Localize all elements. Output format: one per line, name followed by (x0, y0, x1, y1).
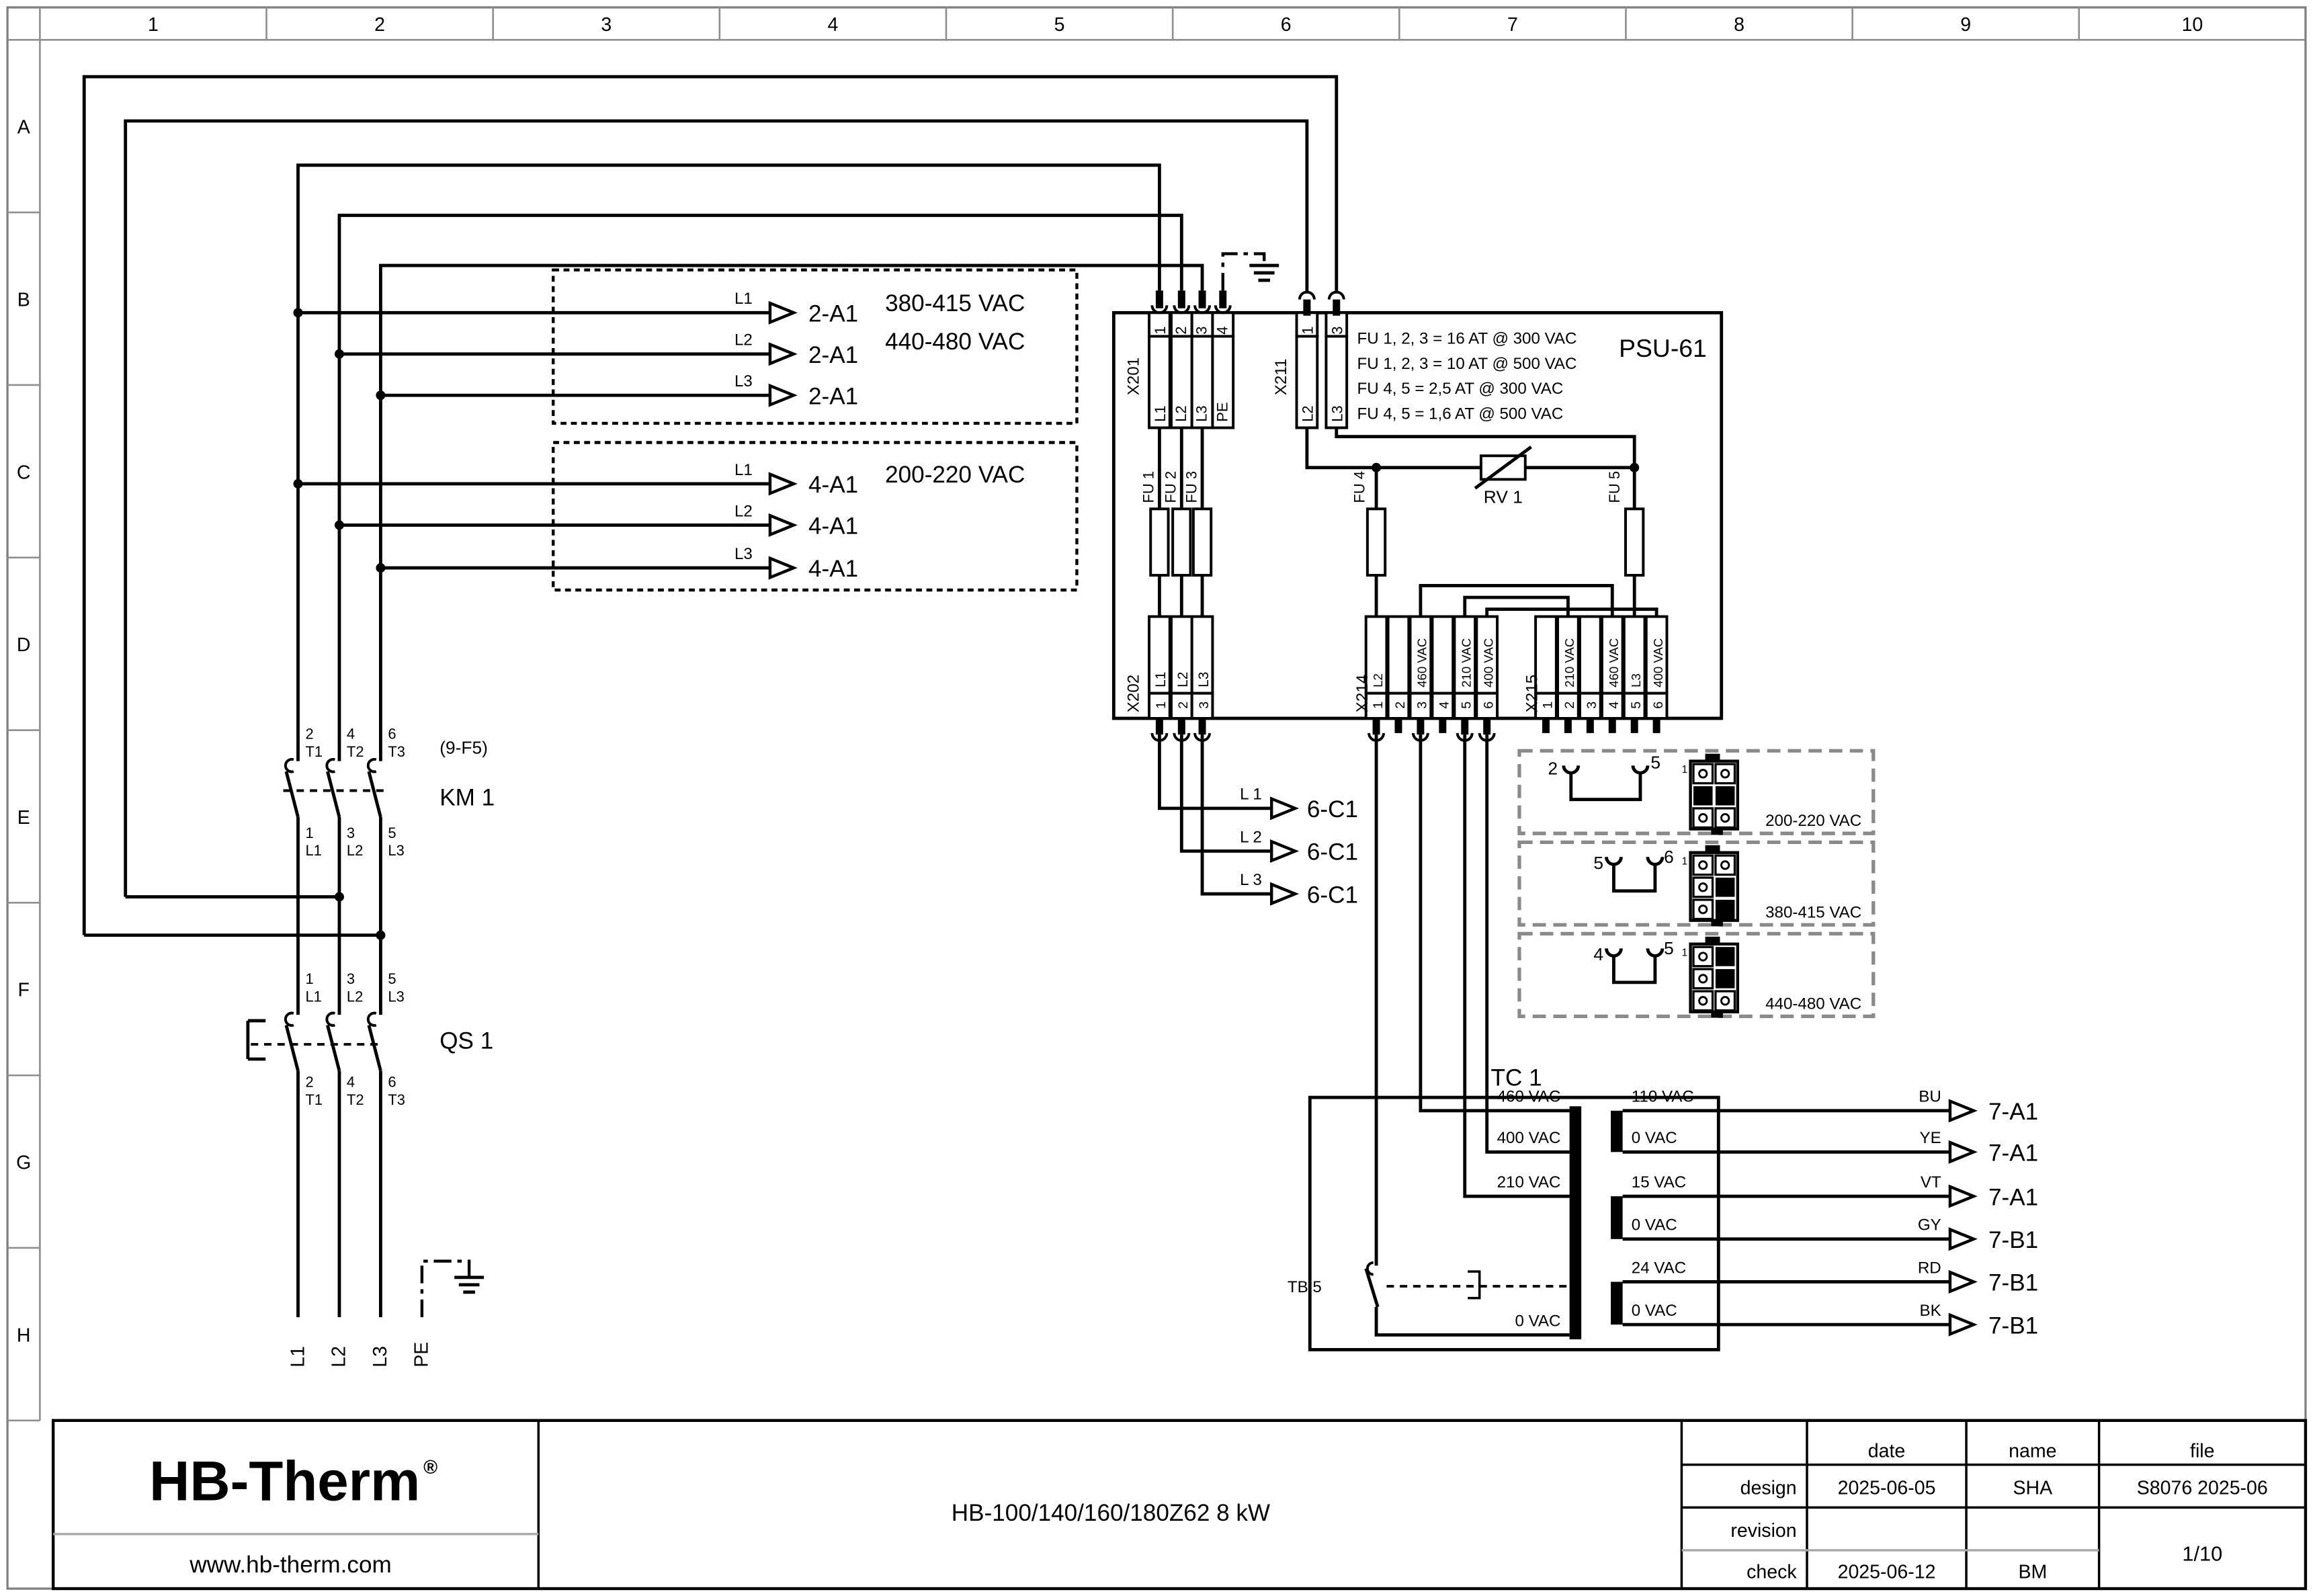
feed-l1-label: L1 (734, 290, 753, 308)
arrow-1 (770, 303, 794, 323)
schematic-page: 12345678910 ABCDEFGH (0, 0, 2313, 1596)
dest-7a1-1: 7-A1 (1988, 1099, 2038, 1125)
km1-blades (286, 771, 380, 817)
x215-c2: 210 VAC (1562, 638, 1576, 687)
feed2-l1-label: L1 (734, 461, 753, 479)
mains-l3: L3 (370, 1346, 391, 1368)
qs1-blades (286, 1025, 380, 1071)
km1-bot-L1: L1 (305, 842, 321, 859)
feed-wire-l2-top (126, 121, 1307, 897)
km1-top-T3: T3 (388, 743, 405, 760)
x215-term3-body (1580, 617, 1601, 694)
grid-row-H: H (17, 1325, 31, 1346)
optC-pin5: 5 (1664, 938, 1674, 958)
feed-wire-l1 (298, 165, 1160, 761)
fuse-note-1: FU 1, 2, 3 = 16 AT @ 300 VAC (1357, 329, 1577, 347)
voltage-range-2: 440-480 VAC (885, 329, 1025, 355)
jumper-5-6 (1606, 857, 1662, 890)
col-header-name: name (2009, 1441, 2056, 1462)
fu5-label: FU 5 (1606, 471, 1623, 503)
arrow-2 (770, 345, 794, 364)
fuse-note-2: FU 1, 2, 3 = 10 AT @ 500 VAC (1357, 355, 1577, 373)
optA-voltage: 200-220 VAC (1765, 812, 1861, 830)
contactor-km1 (284, 759, 387, 817)
feed-wire-l2 (339, 215, 1181, 761)
grid-row-labels: ABCDEFGH (16, 117, 31, 1347)
ground-symbol-mains (454, 1277, 484, 1292)
x215-c5: L3 (1629, 673, 1643, 687)
x202-label: X202 (1125, 675, 1143, 712)
fuse-fu1 (1150, 509, 1168, 575)
voltage-range-3: 200-220 VAC (885, 462, 1025, 488)
fuse-fu4 (1368, 509, 1385, 575)
grid-row-B: B (17, 289, 30, 310)
dest-7b1-3: 7-B1 (1988, 1312, 2038, 1339)
x201-t2: 2 (1173, 327, 1189, 335)
dest-2a1-3: 2-A1 (808, 383, 858, 409)
fu1-label: FU 1 (1140, 471, 1157, 503)
x202-l3: L3 (1196, 672, 1212, 687)
x215-t5: 5 (1629, 702, 1644, 709)
tc1-sec-24: 24 VAC (1632, 1259, 1686, 1277)
tb5-actuator (1468, 1271, 1480, 1298)
arrow-14 (1950, 1272, 1974, 1292)
disconnect-qs1 (248, 1013, 381, 1071)
wirecolor-ye: YE (1920, 1129, 1941, 1147)
qs1-bot-T1: T1 (305, 1091, 323, 1108)
fuse-fu5 (1626, 509, 1643, 575)
connector-pinout-icons (1691, 754, 1738, 1018)
fu2-label: FU 2 (1163, 471, 1179, 503)
fuse-note-3: FU 4, 5 = 2,5 AT @ 300 VAC (1357, 380, 1564, 398)
dest-7a1-3: 7-A1 (1988, 1184, 2038, 1210)
arrow-12 (1950, 1187, 1974, 1206)
x214-t4: 4 (1437, 702, 1452, 709)
x215-t3: 3 (1585, 702, 1599, 709)
tie-wires (84, 897, 380, 935)
wirecolor-rd: RD (1918, 1259, 1941, 1277)
page-number: 1/10 (2182, 1542, 2222, 1565)
x214-t2: 2 (1393, 702, 1408, 709)
x211-label: X211 (1272, 359, 1290, 396)
qs1-top-L3: L3 (388, 988, 404, 1005)
junction-dot-1 (293, 308, 302, 317)
grid-col-9: 9 (1960, 14, 1971, 36)
x211-internal-wires (1307, 428, 1634, 468)
x214-c6: 400 VAC (1481, 638, 1495, 687)
km1-top-T1: T1 (305, 743, 323, 760)
file-value: S8076 2025-06 (2137, 1478, 2268, 1499)
icon-380-415 (1691, 845, 1738, 927)
junction-dot-3 (376, 390, 385, 400)
dest-6c1-3: 6-C1 (1307, 882, 1358, 908)
grid-divider-lines (7, 7, 2079, 1248)
arrow-15 (1950, 1315, 1974, 1335)
qs1-bot-4: 4 (347, 1074, 355, 1091)
dest-6c1-2: 6-C1 (1307, 839, 1358, 866)
grid-col-5: 5 (1054, 14, 1065, 36)
junction-dot-8 (376, 931, 385, 940)
x215-t4: 4 (1607, 702, 1622, 709)
x201-t4: 4 (1214, 327, 1230, 335)
mains-l1: L1 (287, 1346, 308, 1368)
junction-dot-2 (335, 349, 344, 359)
pe-conductor (422, 1261, 469, 1317)
km1-bot-1: 1 (305, 825, 313, 841)
qs1-bot-2: 2 (305, 1074, 313, 1091)
x201-label: X201 (1125, 358, 1143, 395)
x214-c3: 460 VAC (1415, 638, 1429, 687)
km1-bot-L2: L2 (347, 842, 363, 859)
x202-l2: L2 (1175, 672, 1191, 687)
grid-row-D: D (17, 634, 31, 656)
km1-top-4: 4 (347, 726, 355, 743)
grid-row-C: C (17, 462, 31, 483)
website: www.hb-therm.com (189, 1552, 391, 1578)
fu4-label: FU 4 (1351, 471, 1368, 503)
junction-dot-9 (1372, 463, 1381, 472)
grid-column-labels: 12345678910 (148, 14, 2203, 36)
qs1-contact-hooks (286, 1013, 376, 1025)
feed2-l3-label: L3 (734, 545, 753, 563)
km1-top-6: 6 (388, 726, 396, 743)
x202-output-wires (1159, 734, 1271, 894)
feed2-l2-label: L2 (734, 502, 753, 520)
km1-bot-3: 3 (347, 825, 355, 841)
dest-4a1-1: 4-A1 (808, 472, 858, 498)
wire-l3-label: L 3 (1240, 871, 1262, 889)
x201-t1: 1 (1152, 327, 1169, 335)
tc1-secondary-winding-24 (1611, 1282, 1623, 1325)
row-label-check: check (1747, 1562, 1797, 1583)
x215-c6: 400 VAC (1651, 638, 1665, 687)
optA-pin2: 2 (1548, 758, 1558, 778)
dest-7a1-2: 7-A1 (1988, 1140, 2038, 1166)
x211-t1: 1 (1300, 327, 1316, 335)
optC-pin4: 4 (1593, 944, 1603, 964)
dest-4a1-3: 4-A1 (808, 556, 858, 582)
arrow-13 (1950, 1230, 1974, 1249)
tc1-sec-0c: 0 VAC (1632, 1302, 1677, 1320)
bridge-wires (1421, 585, 1656, 616)
tc1-sec-110: 110 VAC (1632, 1088, 1694, 1106)
fuse-note-4: FU 4, 5 = 1,6 AT @ 500 VAC (1357, 405, 1564, 423)
qs1-top-1: 1 (305, 970, 313, 987)
optB-pin1: 1 (1682, 855, 1688, 867)
x214-t1: 1 (1371, 702, 1386, 709)
arrow-6 (770, 558, 794, 578)
wire-l2-label: L 2 (1240, 828, 1262, 846)
connector-option-boxes (1519, 751, 1874, 1017)
arrow-3 (770, 386, 794, 405)
x215-label: X215 (1523, 675, 1541, 712)
logo-text: HB-Therm (149, 1449, 420, 1512)
junction-dot-7 (335, 892, 344, 902)
tc1-sec-15: 15 VAC (1632, 1173, 1686, 1191)
arrow-7 (1271, 799, 1295, 818)
junction-dot-10 (1630, 463, 1639, 472)
icon-200-220 (1691, 754, 1738, 835)
x214-t3: 3 (1415, 702, 1430, 709)
feed-l2-label: L2 (734, 331, 753, 349)
optA-pin5: 5 (1650, 753, 1660, 773)
grid-col-8: 8 (1734, 14, 1744, 36)
mains-l2: L2 (329, 1346, 350, 1368)
arrow-5 (770, 515, 794, 535)
wirecolor-bk: BK (1920, 1302, 1941, 1320)
grid-ticks (7, 7, 2079, 1248)
voltage-range-1: 380-415 VAC (885, 290, 1025, 317)
x214-to-tc1-wires (1376, 734, 1570, 1335)
design-name: SHA (2013, 1478, 2053, 1499)
x201-l3: L3 (1193, 405, 1210, 421)
x214-label: X214 (1353, 675, 1372, 712)
feed-wire-l3-top (84, 77, 1337, 935)
row-label-design: design (1740, 1478, 1797, 1499)
design-date: 2025-06-05 (1838, 1478, 1936, 1499)
km1-ref: (9-F5) (439, 738, 488, 758)
dest-6c1-1: 6-C1 (1307, 796, 1358, 823)
tc1-prim-460: 460 VAC (1497, 1088, 1561, 1106)
km1-bot-L3: L3 (388, 842, 404, 859)
grid-row-F: F (18, 980, 30, 1001)
tc1-sec-0a: 0 VAC (1632, 1129, 1677, 1147)
km1-bot-5: 5 (388, 825, 396, 841)
grid-col-6: 6 (1281, 14, 1292, 36)
x214-t6: 6 (1481, 702, 1496, 709)
wirecolor-bu: BU (1919, 1088, 1941, 1106)
arrow-4 (770, 474, 794, 494)
dest-7b1-2: 7-B1 (1988, 1270, 2038, 1296)
icon-440-480 (1691, 937, 1738, 1018)
fuse-fu3 (1193, 509, 1211, 575)
junction-dot-4 (293, 479, 302, 489)
qs1-handle (248, 1021, 265, 1059)
x211-l3: L3 (1329, 405, 1346, 421)
tc1-prim-210: 210 VAC (1497, 1173, 1561, 1191)
tc1-secondary-winding-110 (1611, 1111, 1623, 1152)
junction-dot-5 (335, 520, 344, 530)
x214-c1: L2 (1371, 673, 1385, 687)
feed-wire-l3 (380, 265, 1202, 761)
x215-t1: 1 (1540, 702, 1555, 709)
qs1-top-L2: L2 (347, 988, 363, 1005)
km1-top-2: 2 (305, 726, 313, 743)
tc1-secondary-winding-15 (1611, 1196, 1623, 1239)
grid-col-2: 2 (374, 14, 385, 36)
x201-l2: L2 (1173, 405, 1189, 421)
x202-t3: 3 (1197, 702, 1212, 709)
grid-col-3: 3 (601, 14, 612, 36)
fuse-fu2 (1173, 509, 1190, 575)
grid-col-4: 4 (827, 14, 838, 36)
tb5-label: TB 5 (1288, 1278, 1322, 1296)
wire-l1-label: L 1 (1240, 786, 1262, 804)
km1-top-T2: T2 (347, 743, 364, 760)
arrow-10 (1950, 1101, 1974, 1121)
grid-row-E: E (17, 807, 30, 829)
qs1-bot-T2: T2 (347, 1091, 364, 1108)
x211-l2: L2 (1300, 405, 1316, 421)
drawing-title: HB-100/140/160/180Z62 8 kW (952, 1500, 1271, 1526)
optC-pin1: 1 (1682, 947, 1688, 958)
grid-col-1: 1 (148, 14, 159, 36)
check-name: BM (2018, 1562, 2047, 1583)
x215-c4: 460 VAC (1607, 638, 1621, 687)
optB-voltage: 380-415 VAC (1765, 903, 1861, 921)
dest-4a1-2: 4-A1 (808, 513, 858, 540)
sheet-frame (7, 7, 2306, 1589)
qs1-name: QS 1 (439, 1028, 493, 1054)
dest-7b1-1: 7-B1 (1988, 1227, 2038, 1253)
tc1-prim-0: 0 VAC (1515, 1312, 1560, 1330)
optB-pin5: 5 (1593, 853, 1603, 873)
grid-row-G: G (16, 1152, 31, 1174)
qs1-top-5: 5 (388, 970, 396, 987)
qs1-bot-6: 6 (388, 1074, 396, 1091)
schematic-drawing: 12345678910 ABCDEFGH (0, 0, 2313, 1596)
logo-reg-mark: ® (423, 1457, 437, 1478)
check-date: 2025-06-12 (1838, 1562, 1936, 1583)
tb5-hook (1368, 1263, 1374, 1275)
col-header-date: date (1868, 1441, 1906, 1462)
x214-term2-body (1388, 617, 1409, 694)
x211-socket-2 (1329, 292, 1344, 300)
x214-c5: 210 VAC (1460, 638, 1474, 687)
qs1-top-L1: L1 (305, 988, 321, 1005)
km1-name: KM 1 (439, 784, 495, 810)
row-label-revision: revision (1730, 1520, 1796, 1542)
fuse-columns (1159, 428, 1634, 617)
x201-l1: L1 (1152, 405, 1169, 421)
x215-t2: 2 (1562, 702, 1577, 709)
tc1-primary-winding (1570, 1106, 1582, 1339)
arrow-11 (1950, 1142, 1974, 1162)
branch-wires (298, 312, 770, 568)
dest-2a1-2: 2-A1 (808, 342, 858, 368)
arrow-8 (1271, 841, 1295, 861)
fu3-label: FU 3 (1183, 471, 1200, 503)
optC-voltage: 440-480 VAC (1765, 995, 1861, 1013)
x202-t1: 1 (1154, 702, 1169, 709)
x201-t3: 3 (1193, 327, 1210, 335)
km1-contact-hooks (286, 759, 376, 771)
mains-pe: PE (411, 1342, 433, 1368)
optA-pin1: 1 (1682, 764, 1688, 775)
grid-row-A: A (17, 117, 30, 138)
x202-t2: 2 (1176, 702, 1191, 709)
x202-l1: L1 (1153, 672, 1169, 687)
tc1-prim-400: 400 VAC (1497, 1129, 1561, 1147)
x215-t6: 6 (1651, 702, 1666, 709)
feed-l3-label: L3 (734, 372, 753, 390)
x214-term4-body (1432, 617, 1453, 694)
wirecolor-gy: GY (1918, 1216, 1941, 1234)
psu-title: PSU-61 (1619, 334, 1707, 362)
rv1-label: RV 1 (1484, 487, 1523, 507)
jumper-4-5 (1606, 948, 1662, 982)
jumper-2-5 (1564, 765, 1648, 799)
x214-t5: 5 (1460, 702, 1474, 709)
junction-dot-6 (376, 563, 385, 573)
grid-col-10: 10 (2181, 14, 2203, 36)
wirecolor-vt: VT (1921, 1173, 1941, 1191)
x201-pe: PE (1214, 403, 1230, 422)
grid-col-7: 7 (1507, 14, 1518, 36)
dest-2a1-1: 2-A1 (808, 301, 858, 327)
x211-t3: 3 (1329, 327, 1346, 335)
ground-symbol-psu (1249, 265, 1279, 280)
tc1-sec-0b: 0 VAC (1632, 1216, 1677, 1234)
terminal-blocks (1149, 312, 1667, 718)
sheet-border (7, 7, 2306, 1589)
arrow-9 (1271, 884, 1295, 904)
qs1-bot-T3: T3 (388, 1091, 405, 1108)
qs1-top-3: 3 (347, 970, 355, 987)
optB-pin6: 6 (1664, 847, 1674, 867)
col-header-file: file (2190, 1441, 2214, 1462)
x211-socket-1 (1300, 292, 1314, 300)
